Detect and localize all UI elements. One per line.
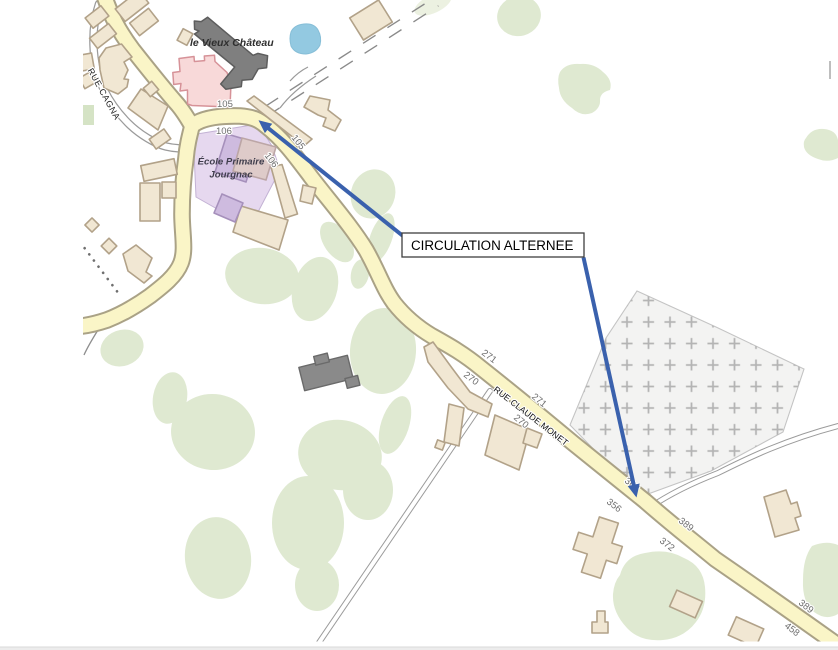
- svg-text:CIRCULATION ALTERNEE: CIRCULATION ALTERNEE: [411, 238, 574, 253]
- svg-text:École Primaire: École Primaire: [198, 157, 265, 168]
- svg-text:105: 105: [217, 99, 233, 110]
- svg-text:le Vieux Château: le Vieux Château: [190, 37, 274, 49]
- svg-text:106: 106: [216, 126, 232, 137]
- svg-text:Jourgnac: Jourgnac: [209, 170, 253, 181]
